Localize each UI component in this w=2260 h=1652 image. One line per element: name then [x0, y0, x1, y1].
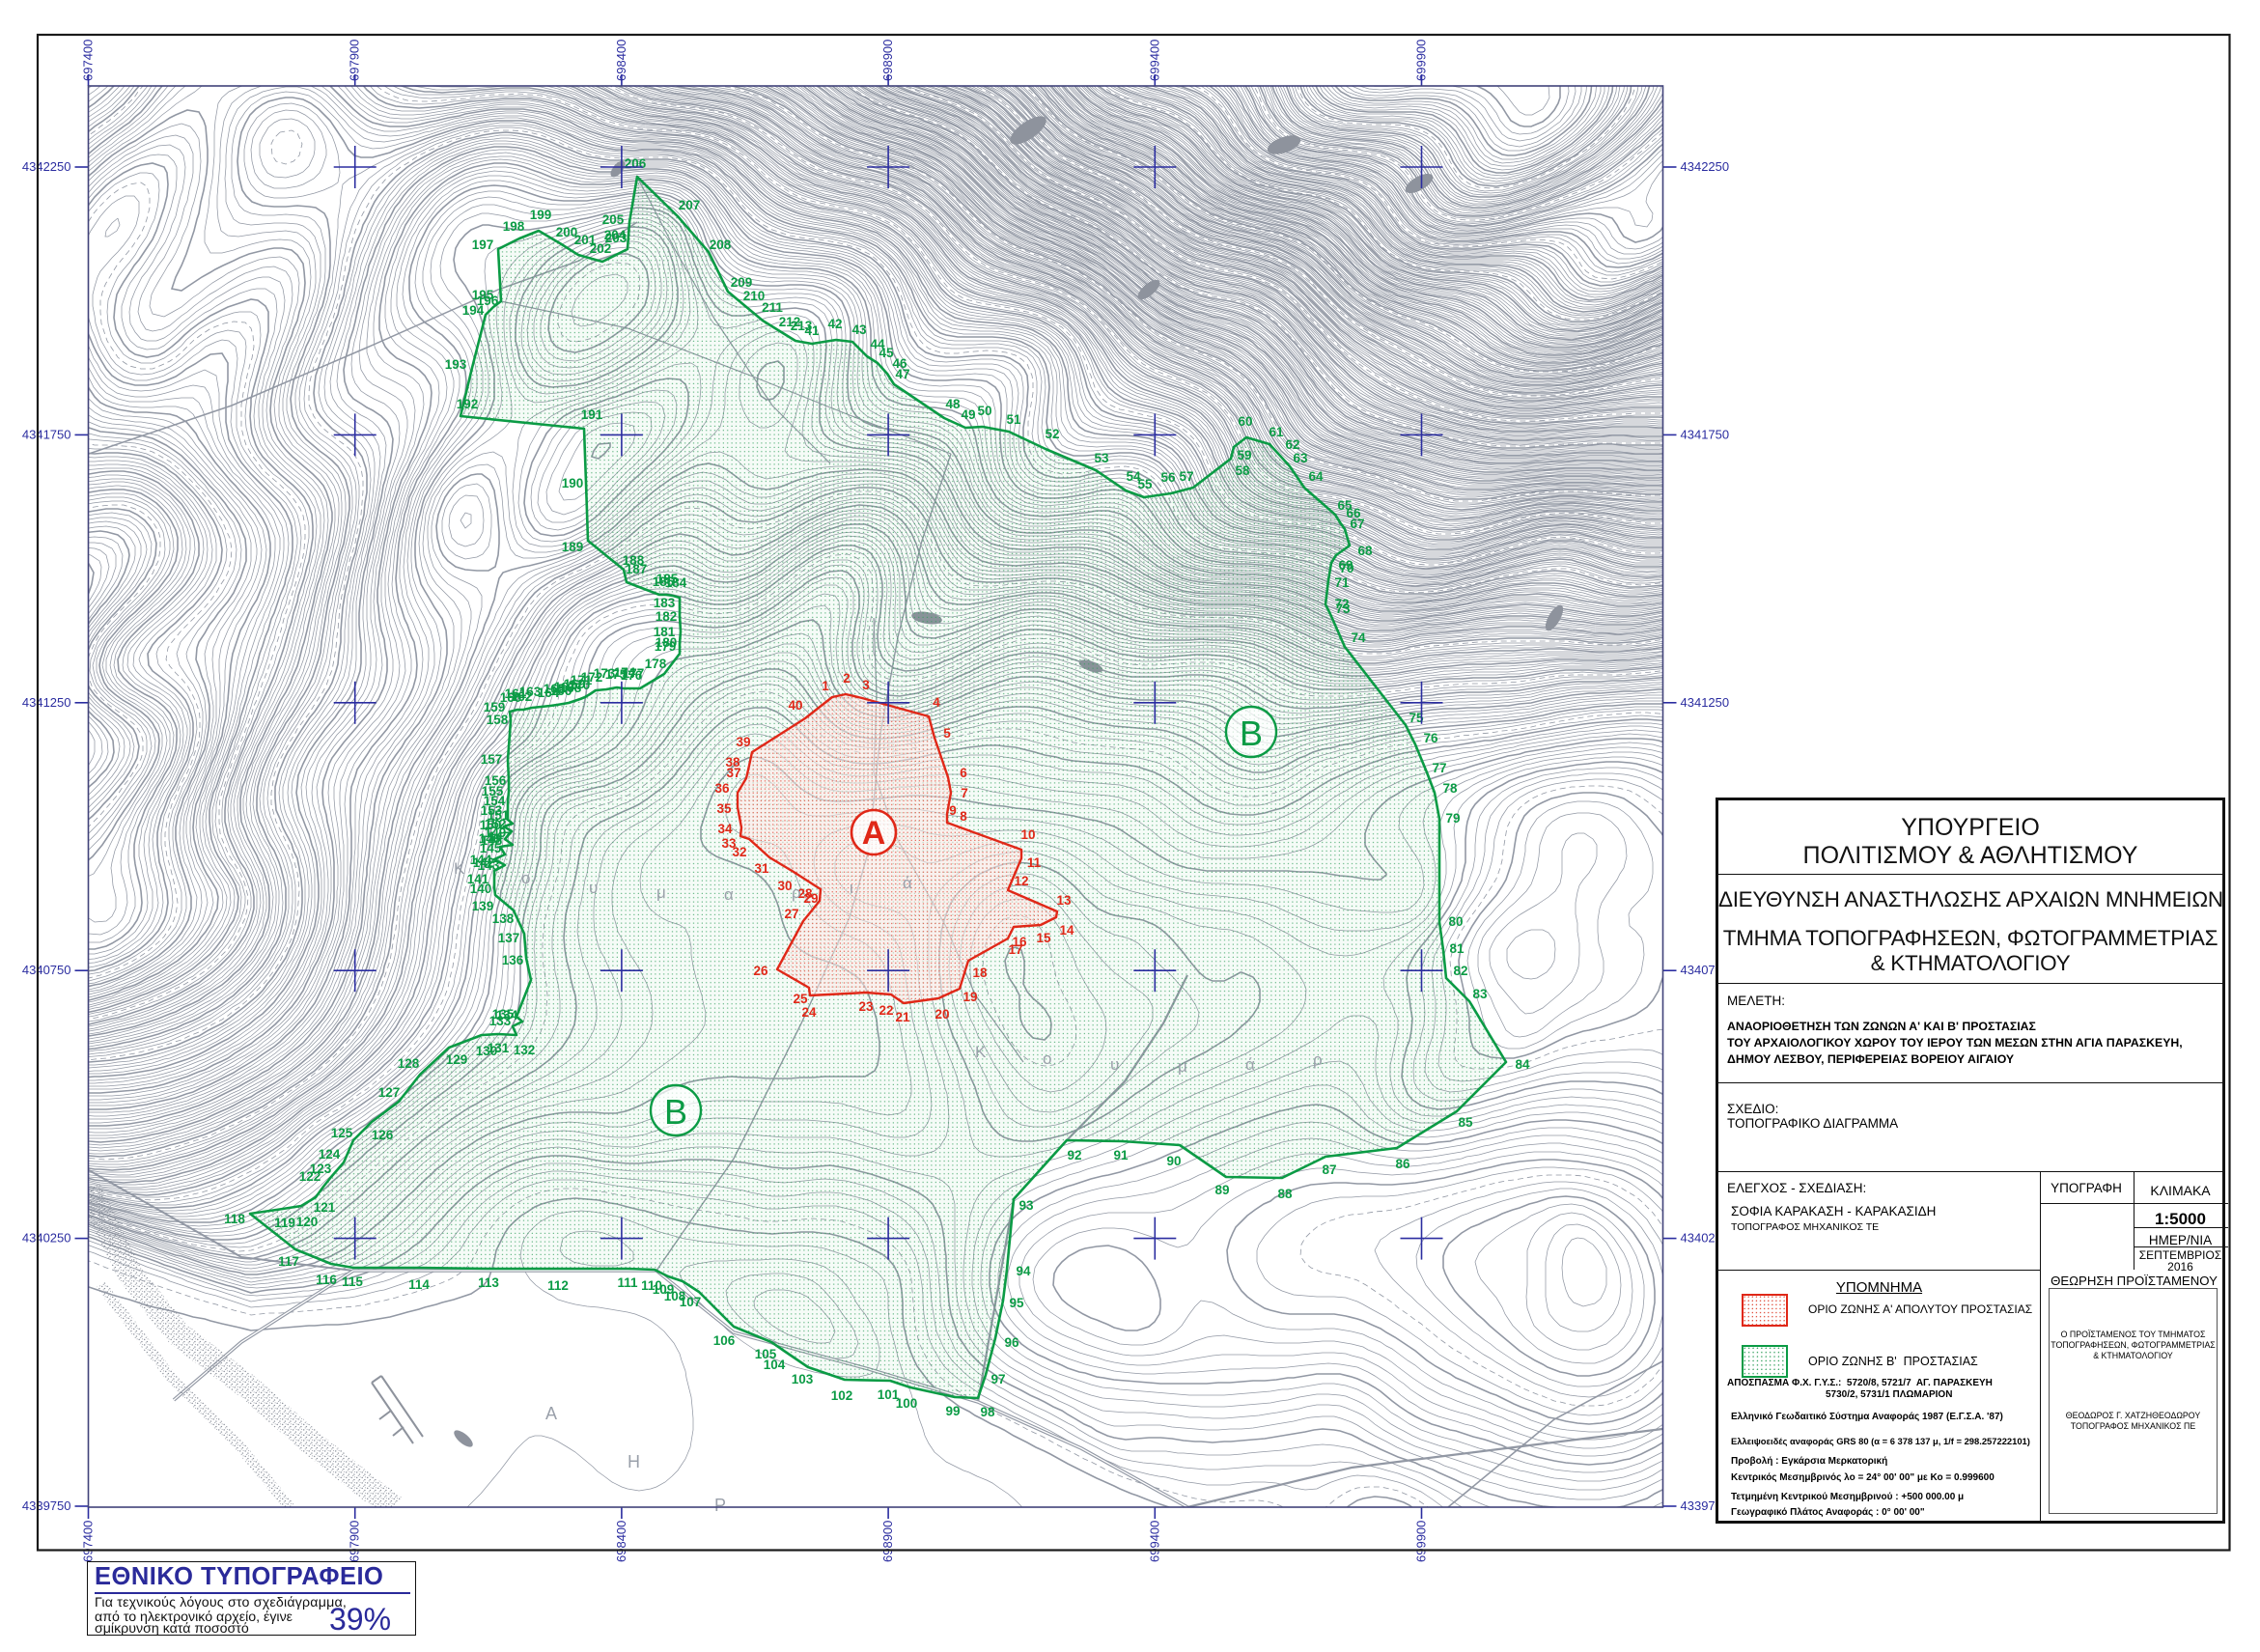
- svg-text:4342250: 4342250: [1681, 159, 1730, 174]
- svg-text:55: 55: [1137, 477, 1153, 491]
- svg-text:ο: ο: [1043, 1050, 1051, 1068]
- svg-text:87: 87: [1322, 1162, 1336, 1177]
- svg-text:97: 97: [990, 1372, 1005, 1386]
- svg-text:μ: μ: [1178, 1057, 1187, 1076]
- svg-text:112: 112: [547, 1278, 569, 1293]
- svg-text:42: 42: [827, 317, 842, 331]
- svg-text:127: 127: [378, 1085, 401, 1100]
- svg-text:197: 197: [472, 238, 494, 252]
- svg-text:88: 88: [1277, 1187, 1293, 1201]
- svg-text:15: 15: [1036, 931, 1051, 945]
- svg-text:26: 26: [753, 964, 768, 978]
- svg-text:141: 141: [467, 872, 489, 886]
- svg-text:697900: 697900: [348, 1521, 362, 1562]
- svg-text:10: 10: [1020, 827, 1035, 842]
- svg-text:48: 48: [945, 397, 961, 411]
- svg-text:41: 41: [804, 323, 820, 338]
- svg-text:49: 49: [961, 407, 975, 422]
- svg-text:27: 27: [784, 907, 798, 921]
- svg-text:11: 11: [1027, 855, 1042, 870]
- svg-text:119: 119: [274, 1216, 295, 1230]
- svg-text:158: 158: [487, 713, 509, 727]
- svg-text:79: 79: [1445, 811, 1460, 826]
- svg-text:22: 22: [879, 1003, 893, 1018]
- svg-text:698400: 698400: [614, 1521, 628, 1562]
- svg-text:μ: μ: [656, 883, 666, 902]
- svg-text:4341250: 4341250: [1681, 695, 1730, 710]
- svg-text:98: 98: [980, 1405, 995, 1419]
- svg-text:191: 191: [581, 407, 603, 422]
- svg-text:699400: 699400: [1147, 1521, 1161, 1562]
- svg-text:6: 6: [960, 766, 967, 780]
- svg-text:99: 99: [945, 1404, 960, 1418]
- svg-text:110: 110: [641, 1278, 662, 1293]
- svg-text:81: 81: [1449, 941, 1465, 956]
- svg-text:υ: υ: [1110, 1055, 1119, 1074]
- svg-text:204: 204: [604, 228, 627, 242]
- svg-text:B: B: [1240, 714, 1263, 753]
- svg-text:61: 61: [1269, 425, 1284, 439]
- svg-text:3: 3: [862, 678, 870, 692]
- svg-text:91: 91: [1113, 1148, 1129, 1162]
- svg-text:89: 89: [1214, 1183, 1229, 1197]
- svg-text:90: 90: [1166, 1154, 1181, 1168]
- svg-text:85: 85: [1458, 1115, 1473, 1130]
- svg-text:51: 51: [1006, 412, 1021, 427]
- svg-text:199: 199: [530, 208, 552, 222]
- svg-text:183: 183: [654, 596, 676, 610]
- svg-text:40: 40: [788, 698, 802, 713]
- svg-text:189: 189: [562, 540, 584, 554]
- svg-text:B: B: [664, 1092, 687, 1132]
- svg-text:33: 33: [721, 836, 737, 851]
- svg-text:20: 20: [935, 1007, 949, 1022]
- svg-text:29: 29: [803, 891, 818, 906]
- svg-text:4341250: 4341250: [22, 695, 71, 710]
- svg-text:12: 12: [1014, 874, 1028, 888]
- svg-text:76: 76: [1423, 731, 1438, 745]
- svg-text:68: 68: [1357, 544, 1373, 558]
- svg-text:ρ: ρ: [1313, 1050, 1323, 1069]
- svg-text:4341750: 4341750: [22, 427, 71, 441]
- svg-text:Ρ: Ρ: [714, 1496, 726, 1515]
- svg-text:ά: ά: [1245, 1055, 1255, 1074]
- svg-text:138: 138: [492, 911, 515, 926]
- svg-text:67: 67: [1350, 517, 1364, 531]
- svg-text:206: 206: [625, 156, 647, 171]
- svg-text:186: 186: [653, 574, 675, 589]
- svg-text:64: 64: [1308, 469, 1324, 484]
- svg-text:113: 113: [478, 1275, 499, 1290]
- svg-text:118: 118: [224, 1212, 245, 1226]
- svg-text:94: 94: [1016, 1264, 1031, 1278]
- svg-text:4: 4: [933, 695, 940, 710]
- svg-text:4342250: 4342250: [22, 159, 71, 174]
- svg-text:α: α: [724, 885, 734, 904]
- svg-text:4339750: 4339750: [22, 1498, 71, 1513]
- svg-text:137: 137: [498, 931, 520, 945]
- svg-text:63: 63: [1293, 451, 1308, 465]
- svg-text:193: 193: [445, 357, 467, 372]
- svg-text:181: 181: [654, 625, 676, 639]
- svg-text:95: 95: [1009, 1296, 1024, 1310]
- svg-text:211: 211: [762, 300, 783, 315]
- svg-text:132: 132: [514, 1043, 536, 1057]
- svg-text:139: 139: [472, 899, 494, 913]
- svg-text:35: 35: [716, 801, 732, 816]
- svg-text:135: 135: [492, 1007, 515, 1022]
- svg-text:4341750: 4341750: [1681, 427, 1730, 441]
- svg-text:71: 71: [1334, 575, 1350, 590]
- svg-text:2: 2: [843, 671, 851, 686]
- svg-text:116: 116: [316, 1273, 337, 1287]
- svg-text:93: 93: [1018, 1198, 1034, 1213]
- svg-text:60: 60: [1238, 414, 1252, 429]
- svg-text:80: 80: [1448, 914, 1463, 929]
- svg-text:25: 25: [793, 992, 808, 1006]
- svg-text:196: 196: [477, 294, 499, 308]
- svg-text:698400: 698400: [614, 40, 628, 81]
- svg-text:699900: 699900: [1414, 1521, 1429, 1562]
- svg-text:82: 82: [1453, 964, 1467, 978]
- svg-text:21: 21: [895, 1010, 910, 1024]
- svg-text:698900: 698900: [880, 40, 895, 81]
- svg-text:699900: 699900: [1414, 40, 1429, 81]
- svg-text:152: 152: [485, 817, 507, 831]
- svg-text:Η: Η: [628, 1452, 640, 1471]
- svg-text:698900: 698900: [880, 1521, 895, 1562]
- svg-text:4340250: 4340250: [22, 1231, 71, 1246]
- svg-text:52: 52: [1045, 427, 1059, 441]
- svg-text:124: 124: [319, 1147, 341, 1162]
- svg-text:57: 57: [1179, 469, 1193, 484]
- svg-text:86: 86: [1395, 1157, 1410, 1171]
- svg-text:59: 59: [1237, 448, 1251, 462]
- svg-text:190: 190: [562, 476, 584, 490]
- svg-text:1: 1: [822, 679, 829, 693]
- svg-text:96: 96: [1004, 1335, 1019, 1350]
- svg-text:697400: 697400: [81, 40, 96, 81]
- svg-text:125: 125: [331, 1126, 353, 1140]
- svg-text:47: 47: [895, 367, 909, 381]
- svg-text:177: 177: [623, 666, 645, 681]
- svg-text:8: 8: [960, 809, 967, 824]
- svg-text:84: 84: [1515, 1057, 1530, 1072]
- svg-text:157: 157: [481, 752, 503, 767]
- svg-text:207: 207: [679, 198, 701, 212]
- svg-text:131: 131: [488, 1041, 510, 1055]
- svg-text:115: 115: [342, 1274, 363, 1289]
- svg-text:182: 182: [656, 609, 678, 624]
- svg-text:23: 23: [858, 999, 874, 1014]
- svg-text:5: 5: [943, 726, 951, 741]
- svg-text:699400: 699400: [1147, 40, 1161, 81]
- svg-text:83: 83: [1472, 987, 1488, 1001]
- svg-text:102: 102: [831, 1388, 853, 1403]
- svg-text:43: 43: [851, 322, 867, 337]
- svg-text:39: 39: [736, 735, 750, 749]
- svg-text:178: 178: [645, 657, 667, 671]
- svg-text:120: 120: [296, 1215, 319, 1229]
- svg-text:24: 24: [801, 1005, 817, 1020]
- svg-text:77: 77: [1432, 761, 1446, 775]
- svg-text:198: 198: [503, 219, 525, 234]
- svg-text:Α: Α: [545, 1404, 557, 1423]
- svg-text:70: 70: [1339, 561, 1353, 575]
- svg-text:14: 14: [1059, 923, 1074, 938]
- svg-text:123: 123: [310, 1162, 332, 1176]
- svg-text:114: 114: [408, 1277, 430, 1292]
- svg-text:78: 78: [1442, 781, 1458, 796]
- svg-text:209: 209: [731, 275, 753, 290]
- svg-text:50: 50: [977, 404, 991, 418]
- svg-text:126: 126: [372, 1128, 394, 1142]
- svg-text:υ: υ: [589, 879, 598, 897]
- svg-text:205: 205: [602, 212, 625, 227]
- svg-text:697400: 697400: [81, 1521, 96, 1562]
- svg-text:58: 58: [1235, 463, 1250, 478]
- svg-text:7: 7: [961, 786, 968, 800]
- svg-text:36: 36: [714, 781, 730, 796]
- svg-text:34: 34: [717, 822, 733, 836]
- svg-text:4340750: 4340750: [22, 963, 71, 977]
- svg-text:101: 101: [878, 1387, 900, 1402]
- svg-text:38: 38: [725, 755, 740, 770]
- svg-text:13: 13: [1056, 893, 1072, 908]
- svg-text:53: 53: [1094, 451, 1109, 465]
- svg-text:74: 74: [1351, 630, 1366, 645]
- svg-text:18: 18: [972, 966, 988, 980]
- svg-text:31: 31: [754, 861, 769, 876]
- svg-text:Κ: Κ: [454, 859, 465, 878]
- svg-text:128: 128: [398, 1056, 420, 1071]
- svg-text:208: 208: [710, 238, 732, 252]
- svg-text:17: 17: [1008, 942, 1022, 957]
- svg-text:103: 103: [792, 1372, 814, 1386]
- svg-text:73: 73: [1335, 602, 1351, 616]
- svg-text:ι: ι: [850, 879, 853, 897]
- svg-text:ο: ο: [521, 869, 530, 887]
- svg-text:697900: 697900: [348, 40, 362, 81]
- svg-text:9: 9: [949, 803, 957, 818]
- svg-text:121: 121: [314, 1200, 336, 1215]
- svg-text:30: 30: [777, 879, 792, 893]
- svg-text:A: A: [862, 815, 886, 852]
- svg-text:Κ: Κ: [975, 1043, 987, 1061]
- svg-text:136: 136: [502, 953, 524, 967]
- svg-text:129: 129: [446, 1052, 468, 1067]
- svg-text:56: 56: [1160, 470, 1176, 485]
- svg-text:188: 188: [623, 553, 645, 568]
- svg-text:117: 117: [278, 1254, 299, 1269]
- svg-text:111: 111: [617, 1275, 638, 1290]
- svg-text:156: 156: [485, 773, 507, 788]
- svg-text:62: 62: [1285, 437, 1299, 452]
- svg-text:ρ: ρ: [792, 883, 801, 902]
- svg-text:19: 19: [963, 990, 977, 1004]
- svg-text:192: 192: [457, 397, 479, 411]
- svg-text:92: 92: [1067, 1148, 1081, 1162]
- svg-text:ά: ά: [903, 874, 912, 892]
- svg-text:106: 106: [713, 1333, 736, 1348]
- svg-text:105: 105: [755, 1347, 777, 1361]
